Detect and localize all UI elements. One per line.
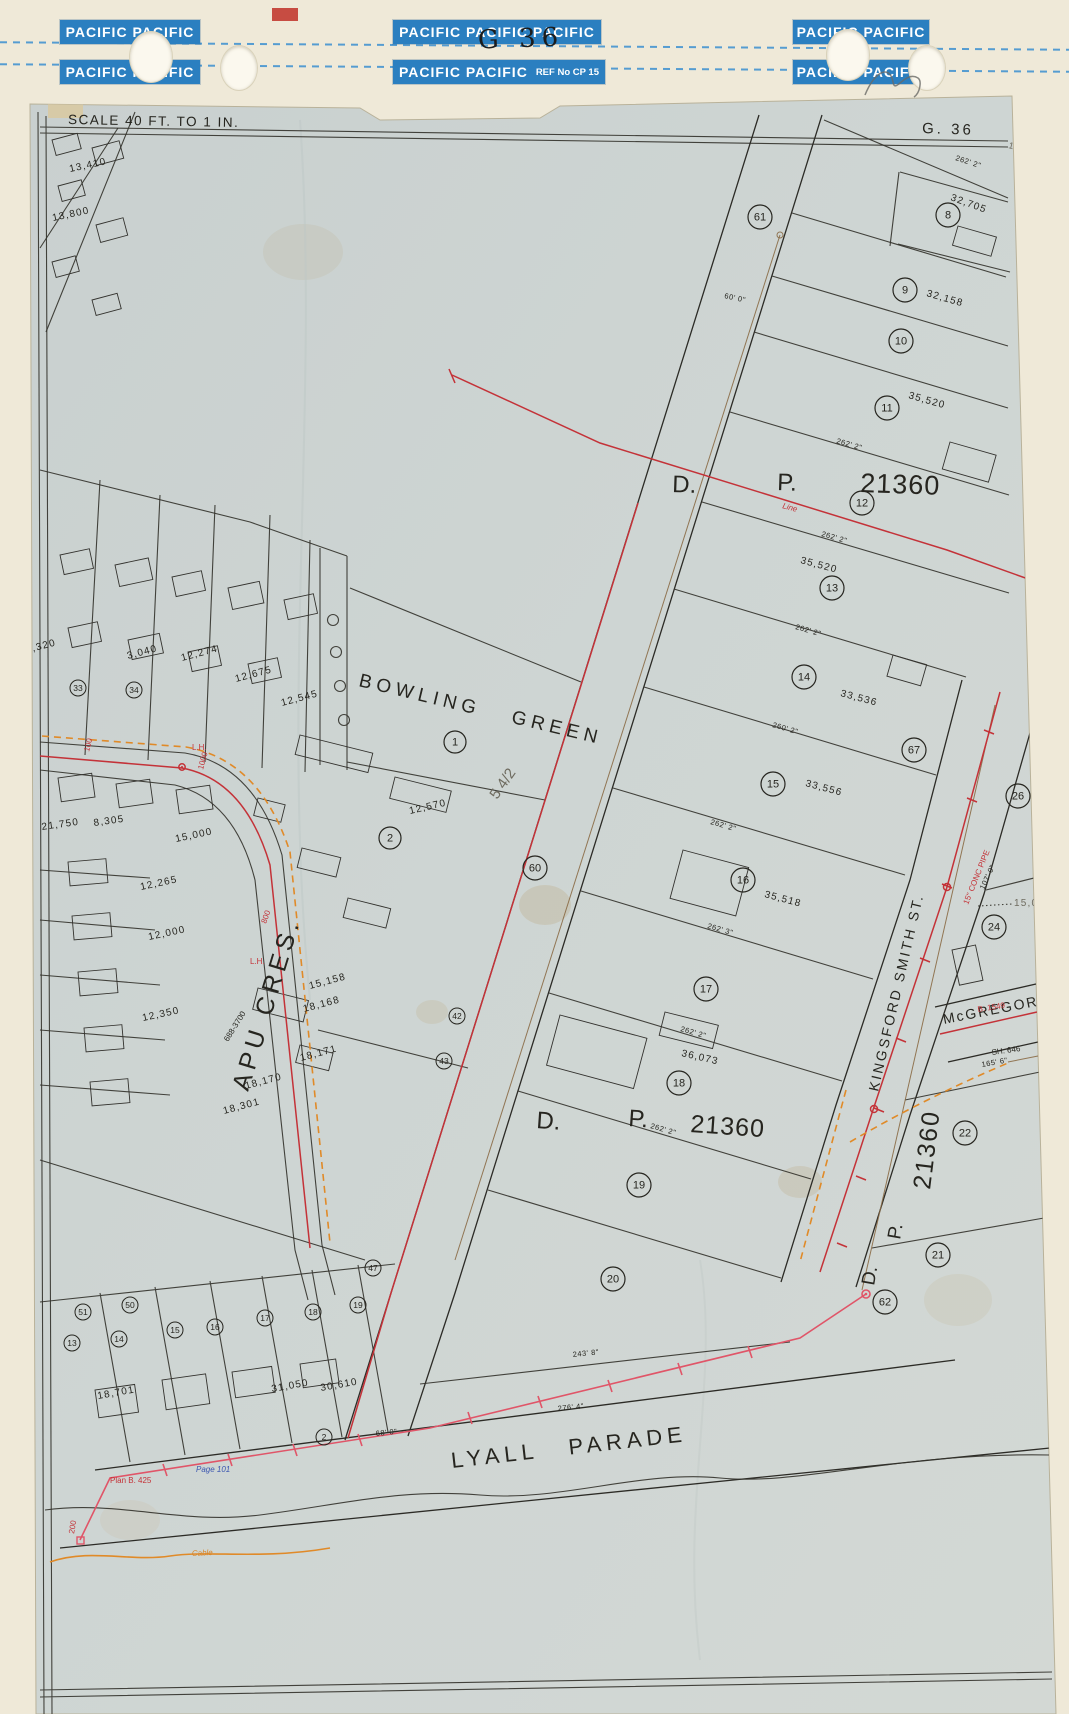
svg-text:13: 13 — [826, 583, 838, 595]
scale-label: SCALE 40 FT. TO 1 IN. — [68, 112, 240, 130]
svg-text:22: 22 — [959, 1128, 971, 1140]
svg-text:12: 12 — [856, 498, 868, 510]
svg-text:15,000: 15,000 — [1014, 898, 1052, 909]
svg-text:61: 61 — [754, 212, 766, 224]
plan-note: Plan B. 425 — [110, 1476, 152, 1485]
svg-text:9: 9 — [902, 285, 908, 297]
page-note: Page 101 — [196, 1465, 230, 1474]
svg-text:17: 17 — [260, 1313, 270, 1323]
cable-note: Cable — [192, 1548, 214, 1558]
pacific-strip: PACIFIC PACIFIC — [60, 20, 200, 44]
svg-text:10: 10 — [895, 336, 907, 348]
dp2-number: 21360 — [690, 1110, 766, 1143]
dp1-d: D. — [672, 471, 697, 499]
survey-map-sheet: BOWLING GREEN APU CRES. LYALL PARADE KIN… — [0, 0, 1069, 1714]
svg-text:20: 20 — [607, 1274, 619, 1286]
svg-text:21: 21 — [932, 1250, 944, 1262]
sheet-ref-label: G. 36 — [922, 120, 974, 139]
svg-text:19: 19 — [353, 1300, 363, 1310]
svg-text:19: 19 — [633, 1180, 645, 1192]
svg-text:16: 16 — [210, 1322, 220, 1332]
svg-text:47: 47 — [368, 1263, 378, 1273]
svg-text:26: 26 — [1012, 791, 1024, 803]
svg-text:60: 60 — [529, 863, 541, 875]
svg-text:2: 2 — [387, 833, 393, 845]
svg-text:51: 51 — [78, 1307, 88, 1317]
dp1-p: P. — [777, 469, 798, 497]
svg-text:15: 15 — [767, 779, 779, 791]
scanned-survey-sheet: { "header": { "strips": ["PACIFIC PACIFI… — [0, 0, 1069, 1714]
ref-number-label: REF No CP 15 — [536, 67, 599, 78]
svg-text:42: 42 — [452, 1011, 462, 1021]
binder-header: PACIFIC PACIFIC PACIFIC PACIFIC PACIFIC … — [0, 0, 1069, 110]
punch-hole — [220, 45, 258, 91]
svg-text:18: 18 — [673, 1078, 685, 1090]
svg-text:8: 8 — [945, 210, 951, 222]
svg-text:16: 16 — [737, 875, 749, 887]
lh-note: L.H. — [250, 957, 265, 966]
svg-text:67: 67 — [908, 745, 920, 757]
punch-hole — [129, 31, 173, 83]
svg-text:14: 14 — [798, 672, 810, 684]
svg-text:43: 43 — [439, 1056, 449, 1066]
svg-text:2: 2 — [322, 1432, 327, 1442]
svg-text:1: 1 — [452, 737, 458, 749]
svg-text:18: 18 — [308, 1307, 318, 1317]
svg-text:13: 13 — [67, 1338, 77, 1348]
svg-text:34: 34 — [129, 685, 139, 695]
dp2-p: P. — [628, 1105, 649, 1133]
svg-text:24: 24 — [988, 922, 1000, 934]
svg-text:62: 62 — [879, 1297, 891, 1309]
svg-text:33: 33 — [73, 683, 83, 693]
svg-text:50: 50 — [125, 1300, 135, 1310]
dp3-d: D. — [858, 1265, 882, 1287]
svg-text:17: 17 — [700, 984, 712, 996]
svg-text:15: 15 — [170, 1325, 180, 1335]
lh-note: L.H. — [192, 743, 207, 752]
svg-text:11: 11 — [881, 403, 892, 415]
pencil-squiggle — [840, 45, 960, 115]
dp2-d: D. — [536, 1107, 562, 1136]
sheet-code-handwritten: G 36 — [478, 23, 565, 56]
red-sticker-fragment — [272, 8, 298, 21]
svg-text:14: 14 — [114, 1334, 124, 1344]
pacific-strip-with-ref: PACIFIC PACIFICREF No CP 15 — [393, 60, 605, 84]
